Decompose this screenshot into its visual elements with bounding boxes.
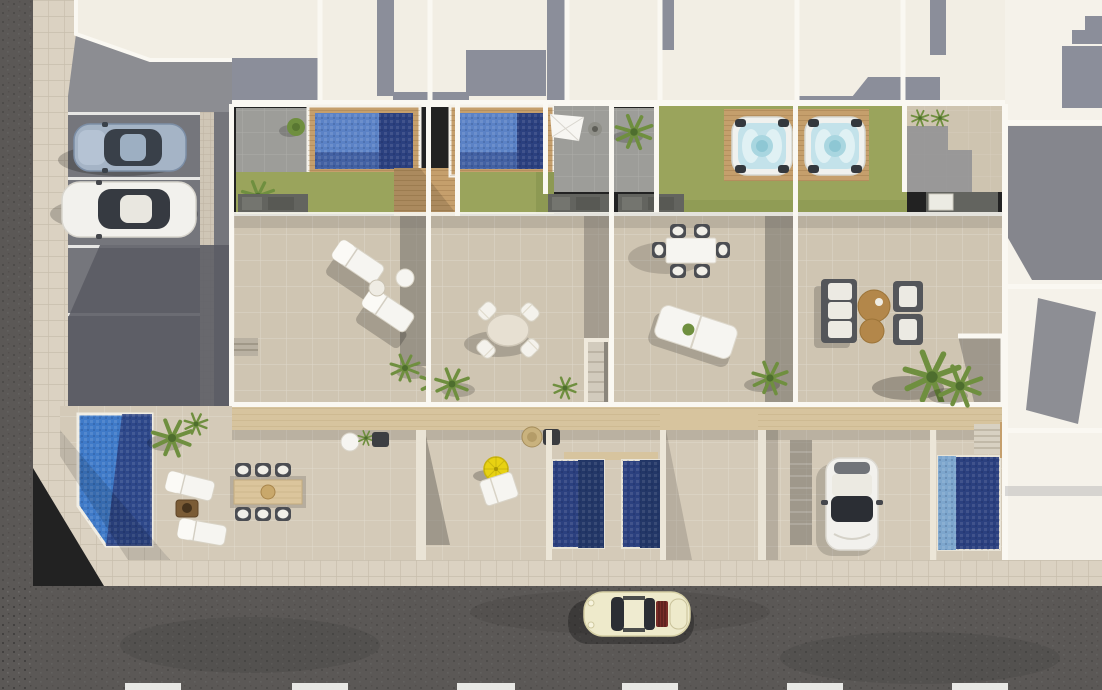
kitchen-door [576, 197, 600, 210]
right-parapet [1005, 120, 1102, 125]
car-mirror [876, 500, 883, 505]
kitchen-door [242, 197, 262, 210]
car-rear-window [644, 598, 655, 630]
pool-wood-edge [564, 452, 658, 460]
unit1-upper-terrace [232, 106, 458, 406]
rooftop-band [232, 0, 1005, 107]
lawn-4-shade [795, 200, 907, 212]
parked-car-white [50, 180, 198, 239]
sofa-cushion [828, 302, 852, 319]
fire-bowl-center [592, 126, 598, 132]
dining-chair [275, 507, 291, 521]
terrace-4-northshadow [795, 216, 1003, 228]
right-parapet [1005, 284, 1102, 289]
roof-shade-sliver [1005, 486, 1102, 496]
car-windshield [611, 597, 624, 631]
dining-chair [652, 242, 666, 258]
car-roof [120, 195, 152, 223]
kitchen-door [552, 197, 570, 210]
car-roof [120, 134, 146, 161]
aerial-render [0, 0, 1102, 690]
patio-wall [416, 430, 426, 560]
asphalt-stain [120, 617, 380, 673]
right-parapet [1005, 428, 1102, 433]
asphalt-texture-left [0, 0, 33, 690]
car-hood [78, 130, 106, 165]
sofa-cushion [828, 283, 852, 300]
staircase-2 [974, 424, 1004, 454]
side-window [623, 596, 645, 600]
headlight [588, 600, 594, 606]
car-rear-window [834, 462, 870, 474]
car-roof [624, 600, 645, 628]
pool2-water-texture [457, 113, 547, 169]
fire-pit-center [182, 503, 192, 513]
terrace-2-wallshadow [584, 216, 612, 340]
round-tree-core [292, 123, 300, 131]
wicker-seat [527, 432, 537, 442]
kitchen-door [268, 197, 294, 210]
car-tail [670, 599, 687, 629]
side-table [369, 280, 385, 296]
unit3-upper-terrace [612, 106, 796, 406]
dining-chair [670, 264, 686, 278]
dining-chair [716, 242, 730, 258]
asphalt-stain [780, 632, 1060, 684]
roof-panel-large [1008, 126, 1102, 280]
car-mirror [821, 500, 828, 505]
hot-tub-2 [805, 117, 865, 175]
armchair-cushion [899, 286, 917, 307]
wood-planter-band [660, 414, 758, 428]
unit4-upper-terrace [795, 106, 1003, 406]
car-mirror [102, 168, 108, 173]
steps [234, 338, 258, 356]
parasol-pole [494, 467, 498, 471]
kitchen-door [648, 197, 674, 210]
kitchen-cabinet-white [929, 194, 953, 210]
dining-chair [275, 463, 291, 477]
pool-water-texture [622, 460, 660, 548]
dining-chair [670, 224, 686, 238]
pool-water-texture [938, 456, 1000, 550]
patio-wall [758, 430, 766, 560]
dining-chair [255, 463, 271, 477]
dining-chair [694, 264, 710, 278]
wall-shade [766, 430, 778, 560]
deck-joints [614, 108, 656, 192]
terrace-1-wallshadow [400, 216, 430, 366]
front-parapet-top [232, 402, 1005, 407]
scene-canvas [0, 0, 1102, 690]
parked-car-silver-blue [58, 122, 186, 176]
driveway-car-white [816, 458, 883, 556]
hot-tub-1 [732, 117, 792, 175]
dining-chair [694, 224, 710, 238]
patio-wall [930, 430, 936, 560]
sofa-cushion [828, 321, 852, 338]
coffee-table [858, 290, 890, 322]
roof-panel [1062, 46, 1102, 108]
round-dining-table [487, 314, 529, 346]
pool-water-texture [552, 460, 604, 548]
round-side-table [341, 433, 359, 451]
coffee-table [860, 319, 884, 343]
deck-joints [236, 108, 314, 172]
rect-dining-table [666, 238, 716, 263]
car-mirror [96, 234, 102, 239]
right-neighbor-block [1002, 0, 1102, 560]
street-car-cream [568, 592, 694, 644]
armchair-cushion [899, 319, 917, 340]
kitchen-door [622, 197, 642, 210]
building-shadow-on-parking [68, 245, 232, 410]
table-disc [261, 485, 275, 499]
dining-chair [235, 507, 251, 521]
car-mirror [102, 122, 108, 127]
table-plate [875, 298, 883, 306]
car-windshield [831, 496, 873, 522]
planter-box [372, 432, 389, 447]
pool1-water-texture [315, 113, 413, 169]
car-mirror [96, 180, 102, 185]
dining-chair [235, 463, 251, 477]
parapet-planks [232, 406, 1005, 430]
side-window [623, 628, 645, 632]
patio-wall [660, 430, 666, 560]
dining-chair [255, 507, 271, 521]
ottoman [396, 269, 414, 287]
car-roof [832, 474, 872, 496]
headlight [588, 622, 594, 628]
stair-shadow [790, 440, 812, 545]
